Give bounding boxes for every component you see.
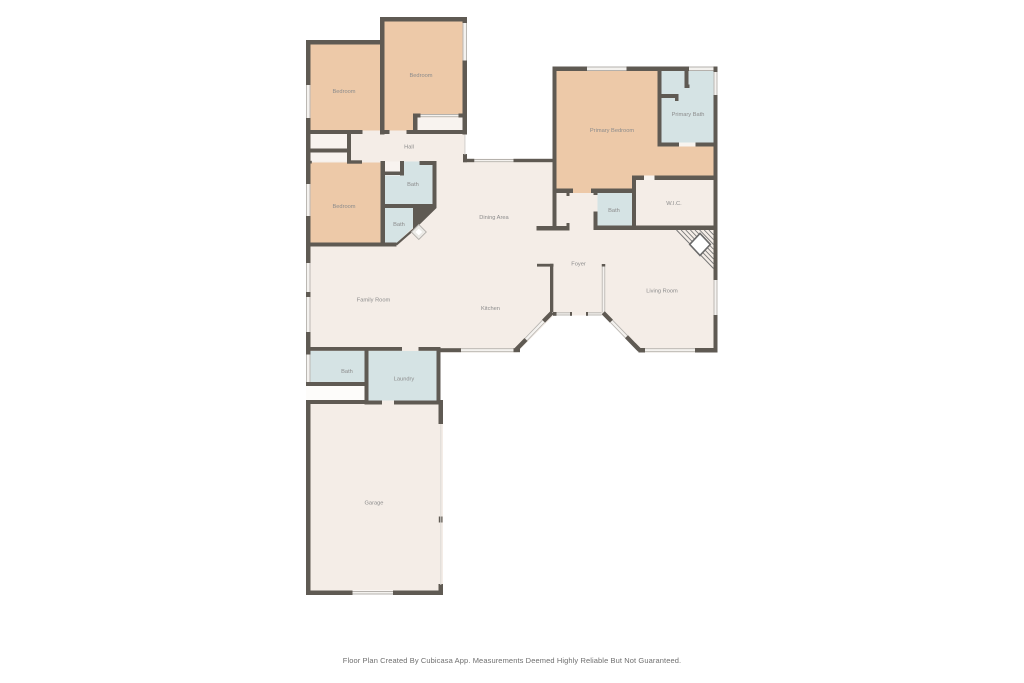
svg-text:Bath: Bath [393,222,405,228]
svg-text:Foyer: Foyer [571,262,586,268]
svg-text:Bedroom: Bedroom [332,204,355,210]
svg-text:W.I.C.: W.I.C. [666,201,682,207]
svg-text:Bath: Bath [341,369,353,375]
svg-text:Living Room: Living Room [646,289,678,295]
svg-text:Hall: Hall [404,145,414,151]
svg-text:Primary Bedroom: Primary Bedroom [590,128,635,134]
svg-text:Bath: Bath [407,182,419,188]
svg-text:Family Room: Family Room [357,298,391,304]
svg-text:Laundry: Laundry [394,377,415,383]
svg-text:Bath: Bath [608,208,620,214]
svg-text:Bedroom: Bedroom [409,73,432,79]
svg-text:Kitchen: Kitchen [481,306,500,312]
svg-text:Primary Bath: Primary Bath [672,112,705,118]
svg-text:Dining Area: Dining Area [479,215,509,221]
svg-text:Bedroom: Bedroom [332,89,355,95]
svg-text:Floor Plan Created By Cubicasa: Floor Plan Created By Cubicasa App. Meas… [343,656,681,665]
svg-text:Garage: Garage [365,501,384,507]
